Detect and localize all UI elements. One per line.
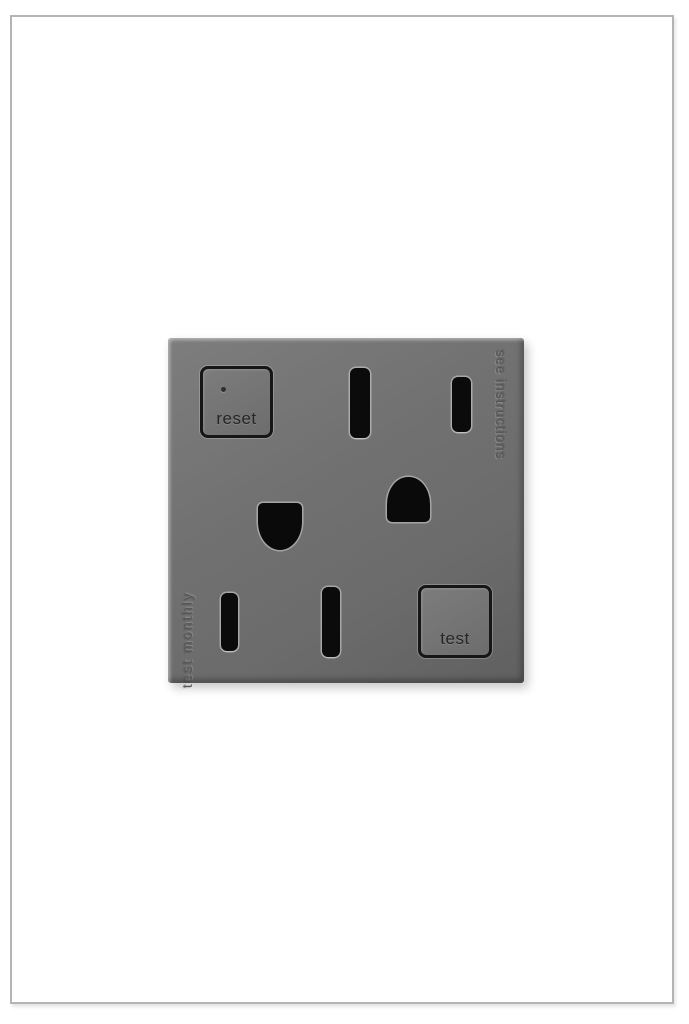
test-monthly-engraving: test monthly bbox=[180, 591, 195, 688]
ground-hole-top bbox=[387, 477, 430, 522]
see-instructions-engraving: see instructions bbox=[493, 350, 508, 460]
reset-indicator-dot bbox=[221, 387, 226, 392]
hot-slot-bottom bbox=[221, 593, 238, 651]
hot-slot-top bbox=[452, 377, 471, 432]
ground-hole-bottom bbox=[258, 503, 302, 550]
reset-button[interactable]: reset bbox=[200, 366, 273, 438]
test-button-label: test bbox=[440, 629, 469, 655]
test-button[interactable]: test bbox=[418, 585, 492, 658]
neutral-slot-bottom bbox=[322, 587, 340, 657]
outlet-faceplate: reset test see instructions test monthly bbox=[168, 338, 524, 683]
neutral-slot-top bbox=[350, 368, 370, 438]
reset-button-label: reset bbox=[216, 409, 256, 435]
photo-frame: reset test see instructions test monthly bbox=[10, 15, 674, 1004]
